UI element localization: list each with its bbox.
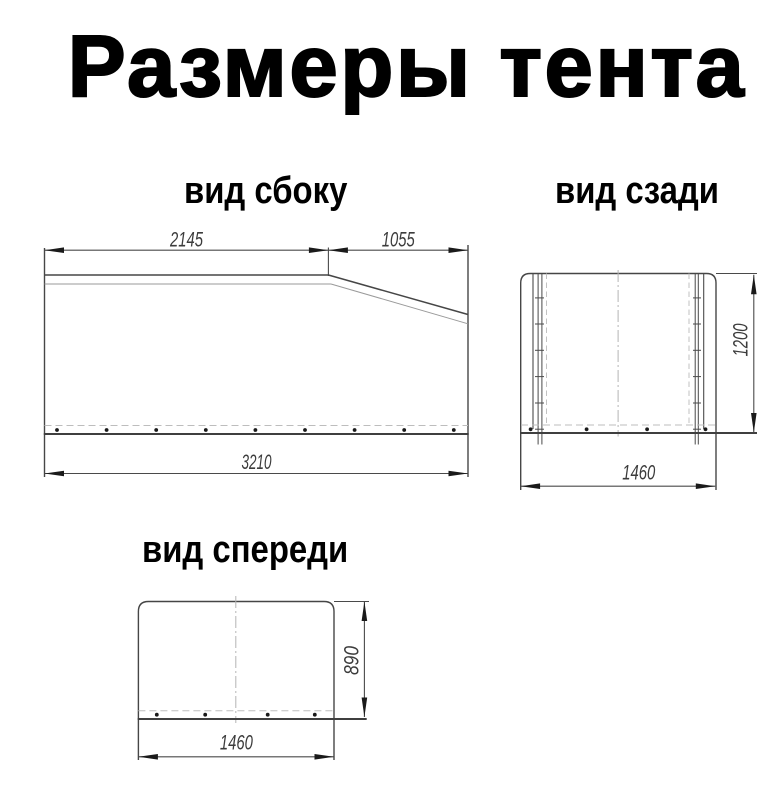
svg-text:1200: 1200 [730,323,753,356]
svg-text:3210: 3210 [242,451,272,474]
svg-text:1460: 1460 [622,462,655,485]
svg-text:890: 890 [341,646,364,675]
svg-text:1460: 1460 [220,732,253,755]
svg-text:2145: 2145 [169,228,203,251]
svg-text:1055: 1055 [382,228,415,251]
